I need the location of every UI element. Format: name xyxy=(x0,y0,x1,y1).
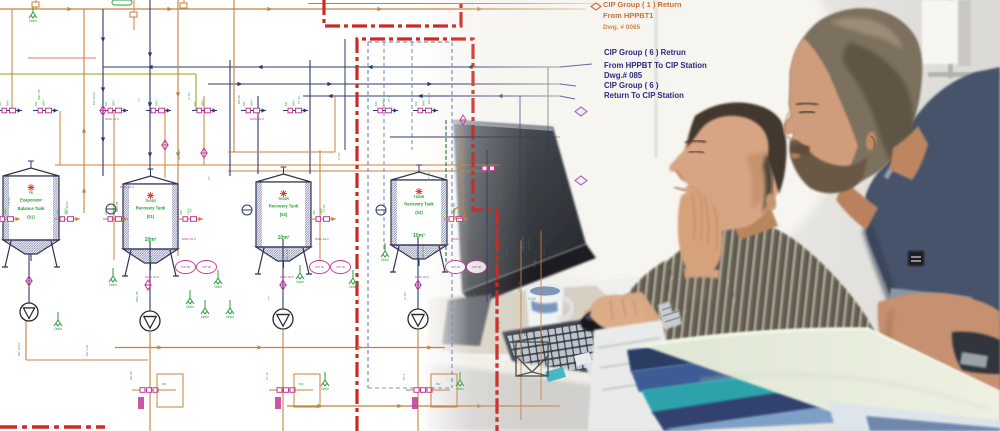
svg-text:Drain: Drain xyxy=(186,305,194,309)
svg-text:Return To CIP Station: Return To CIP Station xyxy=(604,91,684,100)
svg-text:DMG 32.0: DMG 32.0 xyxy=(182,237,196,241)
svg-text:MV: MV xyxy=(299,382,304,386)
svg-text:MV 3.01: MV 3.01 xyxy=(427,92,431,104)
svg-text:NRV 05: NRV 05 xyxy=(115,201,119,212)
svg-text:NRV: NRV xyxy=(6,100,10,106)
svg-text:Recovery Tank: Recovery Tank xyxy=(136,206,166,211)
svg-text:PT 2: PT 2 xyxy=(505,249,509,256)
svg-text:CIP 05: CIP 05 xyxy=(181,265,190,269)
svg-text:MV: MV xyxy=(162,382,167,386)
svg-text:MV: MV xyxy=(374,102,378,107)
svg-text:PT 2: PT 2 xyxy=(402,373,406,380)
svg-text:FT 12: FT 12 xyxy=(297,96,301,104)
svg-text:FT 8: FT 8 xyxy=(519,333,526,337)
svg-text:DMG 32.0: DMG 32.0 xyxy=(415,275,429,279)
svg-text:LT 03: LT 03 xyxy=(403,292,407,300)
svg-text:Recovery Tank: Recovery Tank xyxy=(404,202,434,207)
svg-text:CIP 06: CIP 06 xyxy=(472,265,481,269)
svg-text:MV: MV xyxy=(193,102,197,107)
svg-text:NRV: NRV xyxy=(155,100,159,106)
svg-text:NRV: NRV xyxy=(201,100,205,106)
svg-text:TT 05: TT 05 xyxy=(533,260,537,268)
svg-text:Drain: Drain xyxy=(201,315,209,319)
svg-text:NRV 05: NRV 05 xyxy=(135,291,139,302)
svg-text:MV 12.04: MV 12.04 xyxy=(542,249,546,262)
svg-text:Dwg.# 085: Dwg.# 085 xyxy=(604,71,643,80)
svg-text:FT 12: FT 12 xyxy=(427,172,431,180)
svg-text:TK03R: TK03R xyxy=(414,195,425,199)
svg-text:MV: MV xyxy=(445,210,449,215)
svg-text:FT 12: FT 12 xyxy=(497,192,501,200)
svg-text:TK02R: TK02R xyxy=(278,197,289,201)
svg-text:NRV: NRV xyxy=(4,208,8,214)
svg-text:Evaporator: Evaporator xyxy=(20,198,42,203)
svg-text:NRV 05: NRV 05 xyxy=(517,281,521,292)
svg-text:MV: MV xyxy=(104,102,108,107)
svg-text:MV: MV xyxy=(34,102,38,107)
svg-text:10m³: 10m³ xyxy=(278,235,290,241)
svg-text:MV: MV xyxy=(242,102,246,107)
svg-text:DMG 32.0: DMG 32.0 xyxy=(315,237,329,241)
svg-text:MV 08: MV 08 xyxy=(237,95,241,104)
svg-text:MV: MV xyxy=(436,382,441,386)
svg-text:MV 08: MV 08 xyxy=(467,151,471,160)
svg-text:TT: TT xyxy=(137,98,141,102)
svg-text:Drain: Drain xyxy=(321,387,329,391)
svg-text:PT 2: PT 2 xyxy=(462,223,466,230)
svg-text:TT: TT xyxy=(207,176,211,180)
svg-text:CIP 05: CIP 05 xyxy=(315,265,324,269)
svg-text:MV: MV xyxy=(179,210,183,215)
svg-text:TT: TT xyxy=(267,296,271,300)
svg-text:Drain: Drain xyxy=(381,258,389,262)
svg-text:CIP 06: CIP 06 xyxy=(336,265,345,269)
svg-text:LT 03: LT 03 xyxy=(322,204,326,212)
svg-text:TT: TT xyxy=(189,208,193,212)
svg-text:NRV: NRV xyxy=(42,100,46,106)
svg-text:MV 3.01: MV 3.01 xyxy=(285,248,289,260)
svg-text:TK01R: TK01R xyxy=(145,199,156,203)
svg-text:Dwg. # 0085: Dwg. # 0085 xyxy=(603,24,641,31)
svg-text:NRV: NRV xyxy=(422,100,426,106)
svg-text:Recovery Tank: Recovery Tank xyxy=(269,204,299,209)
svg-text:(01): (01) xyxy=(27,215,35,220)
svg-text:Drain: Drain xyxy=(296,280,304,284)
svg-text:NRV 05: NRV 05 xyxy=(37,89,41,100)
svg-text:MV 12.04: MV 12.04 xyxy=(17,343,21,356)
svg-text:CIP 05: CIP 05 xyxy=(451,265,460,269)
svg-text:Drain: Drain xyxy=(109,283,117,287)
svg-text:DMG 32.0: DMG 32.0 xyxy=(452,237,466,241)
svg-text:MV: MV xyxy=(0,102,2,107)
svg-text:CIP Group ( 6 ) Retrun: CIP Group ( 6 ) Retrun xyxy=(604,48,686,57)
svg-text:Drain: Drain xyxy=(54,327,62,331)
svg-text:Drain: Drain xyxy=(349,285,357,289)
svg-text:Drain: Drain xyxy=(214,285,222,289)
svg-text:Drain: Drain xyxy=(29,19,37,23)
svg-text:CIP Group ( 1 ) Return: CIP Group ( 1 ) Return xyxy=(603,0,682,9)
svg-text:MV 12.04: MV 12.04 xyxy=(421,245,425,258)
svg-text:MV 08: MV 08 xyxy=(129,371,133,380)
svg-text:NRV 05: NRV 05 xyxy=(177,149,181,160)
svg-text:(02): (02) xyxy=(280,212,288,217)
svg-text:LT 02: LT 02 xyxy=(528,297,536,301)
svg-text:MV 12.04: MV 12.04 xyxy=(521,236,525,250)
svg-text:TT: TT xyxy=(357,296,361,300)
svg-text:LT 03: LT 03 xyxy=(337,152,341,160)
svg-text:DMG 32.0: DMG 32.0 xyxy=(145,275,159,279)
svg-text:NRV: NRV xyxy=(250,100,254,106)
svg-text:MV: MV xyxy=(312,210,316,215)
svg-text:NRV: NRV xyxy=(112,100,116,106)
svg-text:FT 12: FT 12 xyxy=(265,372,269,380)
svg-text:NRV: NRV xyxy=(292,100,296,106)
svg-text:MV: MV xyxy=(284,102,288,107)
svg-text:MV 3.01: MV 3.01 xyxy=(527,238,531,250)
svg-text:LT 03: LT 03 xyxy=(472,292,476,300)
svg-text:(01): (01) xyxy=(147,214,155,219)
svg-text:Drain: Drain xyxy=(226,315,234,319)
svg-text:Drain: Drain xyxy=(456,387,464,391)
svg-text:From HPPBT1: From HPPBT1 xyxy=(603,11,653,20)
svg-text:MV 12.04: MV 12.04 xyxy=(65,201,69,214)
svg-text:MV 12.04: MV 12.04 xyxy=(92,92,96,105)
svg-text:TK: TK xyxy=(29,191,34,195)
svg-text:CIP 06: CIP 06 xyxy=(202,265,211,269)
svg-text:MV 3.01: MV 3.01 xyxy=(85,344,89,356)
svg-text:PT 2: PT 2 xyxy=(387,95,391,102)
svg-text:DMG 32.0: DMG 32.0 xyxy=(250,117,264,121)
svg-text:DMG 32.0: DMG 32.0 xyxy=(280,275,294,279)
svg-text:CIP Group ( 6 ): CIP Group ( 6 ) xyxy=(604,81,659,90)
svg-text:NRV: NRV xyxy=(382,100,386,106)
svg-text:Balance Tank: Balance Tank xyxy=(18,206,45,211)
svg-text:10m³: 10m³ xyxy=(145,237,157,243)
svg-text:MV 08: MV 08 xyxy=(452,203,456,212)
svg-text:LT 03: LT 03 xyxy=(187,92,191,100)
svg-text:MV: MV xyxy=(414,102,418,107)
svg-text:DMG 32.0: DMG 32.0 xyxy=(120,185,134,189)
svg-text:From HPPBT To CIP Station: From HPPBT To CIP Station xyxy=(604,61,707,70)
svg-text:FT 12: FT 12 xyxy=(7,197,11,205)
svg-text:(03): (03) xyxy=(415,210,423,215)
svg-text:10m³: 10m³ xyxy=(413,233,425,239)
svg-text:MV: MV xyxy=(56,210,60,215)
svg-text:DMG 32.0: DMG 32.0 xyxy=(105,117,119,121)
svg-text:PT 2: PT 2 xyxy=(149,255,153,262)
